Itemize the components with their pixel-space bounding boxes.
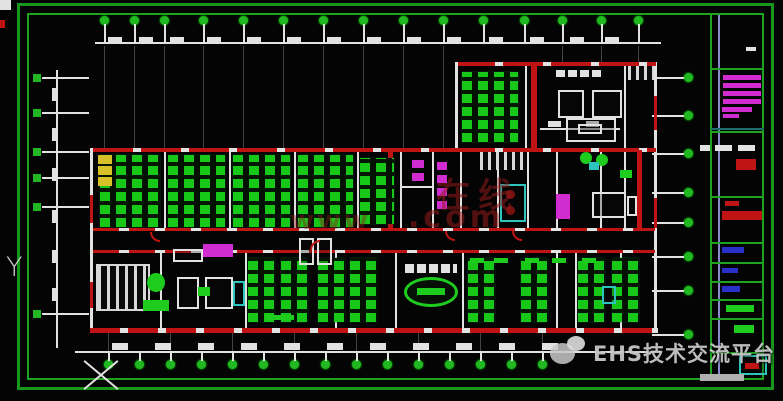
- titleblock-magenta-text-line: [723, 114, 739, 118]
- axis-stem: [480, 353, 482, 361]
- partition-upper: [400, 152, 402, 228]
- axis-stem: [283, 24, 285, 43]
- dimension-text: [52, 210, 58, 223]
- axis-stem: [638, 24, 640, 43]
- axis-bubble-right: [684, 149, 693, 158]
- titleblock-blue-text: [722, 268, 738, 273]
- room-label: [525, 258, 539, 263]
- axis-stem: [139, 353, 141, 361]
- extension-line: [418, 333, 419, 351]
- extension-line: [363, 46, 364, 148]
- wall-right-red: [654, 96, 657, 130]
- partition-lower: [245, 253, 247, 328]
- axis-stem: [483, 24, 485, 43]
- axis-stem: [325, 353, 327, 361]
- axis-leader: [42, 206, 89, 208]
- dimension-text: [155, 343, 171, 350]
- ucs-y-label: Y: [6, 252, 23, 283]
- titleblock-divider: [711, 131, 764, 133]
- extension-line: [601, 46, 602, 62]
- titleblock-magenta-text-line: [723, 83, 761, 88]
- axis-stem: [511, 353, 513, 361]
- workstation-cluster: [281, 258, 308, 322]
- axis-leader: [42, 151, 89, 153]
- center-watermark-fragment: .com: [408, 200, 505, 235]
- extension-line: [134, 46, 135, 148]
- cad-floorplan-image: 在线 .com www EHS技术交流平台 Y: [0, 0, 783, 401]
- axis-stem: [232, 353, 234, 361]
- conference-cabinets: [405, 264, 457, 273]
- dimension-text: [530, 37, 544, 43]
- room-label: [470, 258, 484, 263]
- wall-right-red: [654, 198, 657, 228]
- axis-bubble-right: [684, 286, 693, 295]
- dimension-text: [112, 343, 128, 350]
- dimension-text: [407, 37, 421, 43]
- partition-upper: [527, 152, 529, 228]
- titleblock-red-stamp: [736, 159, 756, 170]
- sofa-table: [578, 124, 602, 134]
- axis-stem: [323, 24, 325, 43]
- extension-line: [283, 46, 284, 148]
- axis-stem: [418, 353, 420, 361]
- axis-marker-left: [33, 203, 41, 211]
- titleblock-divider: [711, 196, 764, 198]
- dimension-text: [52, 250, 58, 263]
- axis-bubble-bottom: [445, 360, 454, 369]
- axis-bubble-bottom: [321, 360, 330, 369]
- titleblock-magenta-text-line: [722, 107, 752, 112]
- extension-line: [203, 46, 204, 148]
- dimension-text: [52, 128, 58, 141]
- titleblock-divider: [711, 281, 764, 283]
- partition-lower: [556, 253, 558, 328]
- partition-lower: [395, 253, 397, 328]
- axis-stem: [108, 353, 110, 361]
- office-desk: [592, 90, 622, 118]
- stair-hatch: [628, 66, 654, 80]
- page-corner-artifact: [0, 0, 11, 10]
- lobby-fixture: [233, 281, 245, 306]
- axis-leader: [42, 112, 89, 114]
- axis-bubble-bottom: [476, 360, 485, 369]
- wall-left-red: [90, 282, 93, 308]
- titleblock-drawing-code: [700, 145, 710, 151]
- extension-line: [170, 333, 171, 351]
- dimension-text: [52, 88, 58, 101]
- dimension-text: [284, 343, 300, 350]
- axis-stem: [203, 24, 205, 43]
- lobby-box: [173, 249, 203, 262]
- axis-bubble-right: [684, 73, 693, 82]
- titleblock-symbol: [734, 325, 754, 333]
- axis-bubble-right: [684, 252, 693, 261]
- dimension-text: [327, 343, 343, 350]
- axis-stem: [524, 24, 526, 43]
- axis-bubble-bottom: [166, 360, 175, 369]
- axis-marker-left: [33, 148, 41, 156]
- hedge: [143, 300, 169, 311]
- dimension-text: [241, 343, 257, 350]
- dimension-text: [499, 343, 515, 350]
- axis-stem: [542, 353, 544, 361]
- dimension-text: [447, 37, 461, 43]
- conference-chairs: [417, 288, 445, 295]
- plant: [198, 287, 210, 296]
- workstation-cluster: [168, 155, 225, 227]
- workstation-cluster: [350, 258, 377, 322]
- workstation-cluster: [578, 258, 605, 322]
- axis-bubble-bottom: [383, 360, 392, 369]
- axis-stem: [201, 353, 203, 361]
- extension-line: [232, 333, 233, 351]
- center-watermark-fragment: www: [290, 206, 371, 236]
- extension-line: [104, 46, 105, 148]
- extension-line: [562, 46, 563, 62]
- axis-stem: [403, 24, 405, 43]
- axis-stem: [263, 353, 265, 361]
- pantry-fixture: [98, 177, 112, 186]
- wall-wing-left: [455, 62, 458, 152]
- dimension-text: [370, 343, 386, 350]
- toilet-fixture: [412, 173, 424, 181]
- extension-line: [356, 333, 357, 351]
- dimension-text: [327, 37, 341, 43]
- titleblock-magenta-text-line: [723, 75, 761, 80]
- meeting-tables: [462, 72, 518, 142]
- dimension-text: [489, 37, 503, 43]
- dimension-text: [207, 37, 221, 43]
- axis-stem: [363, 24, 365, 43]
- titleblock-drawing-code: [715, 145, 732, 151]
- workstation-cluster: [612, 258, 639, 322]
- fixture: [602, 286, 616, 304]
- room-label: [494, 258, 508, 263]
- room-label: [266, 315, 294, 320]
- dimension-text: [413, 343, 429, 350]
- titleblock-teal-divider: [711, 128, 764, 130]
- axis-stem: [243, 24, 245, 43]
- dimension-text: [570, 37, 584, 43]
- extension-line: [164, 46, 165, 148]
- elevator-shaft: [299, 238, 314, 265]
- dimension-line-left: [56, 70, 58, 348]
- side-cabinet: [627, 196, 637, 216]
- axis-stem: [356, 353, 358, 361]
- titleblock-green-text: [726, 305, 754, 312]
- room-label: [552, 258, 566, 263]
- titleblock-magenta-text-line: [723, 91, 761, 96]
- axis-bubble-bottom: [414, 360, 423, 369]
- titleblock-blue-text: [722, 247, 744, 253]
- bottom-right-watermark: EHS技术交流平台: [550, 336, 775, 370]
- dimension-text: [139, 37, 153, 43]
- pantry-fixture: [98, 166, 112, 175]
- axis-stem: [387, 353, 389, 361]
- wing-partition: [624, 66, 626, 150]
- titleblock-logo-mark: [746, 47, 756, 51]
- axis-bubble-bottom: [197, 360, 206, 369]
- toilet-fixture: [556, 194, 570, 219]
- axis-marker-left: [33, 174, 41, 182]
- axis-stem: [601, 24, 603, 43]
- dimension-text: [52, 288, 58, 301]
- axis-stem: [170, 353, 172, 361]
- titleblock-divider: [711, 262, 764, 264]
- axis-bubble-bottom: [538, 360, 547, 369]
- lobby-magenta-door: [203, 244, 233, 257]
- extension-line: [480, 333, 481, 351]
- partition-upper: [229, 152, 231, 228]
- extension-line: [294, 333, 295, 351]
- axis-stem: [104, 24, 106, 43]
- axis-stem: [294, 353, 296, 361]
- titleblock-divider: [711, 318, 764, 320]
- axis-bubble-right: [684, 188, 693, 197]
- titleblock-blue-text: [722, 286, 740, 292]
- reception-desk: [177, 277, 199, 309]
- axis-marker-left: [33, 310, 41, 318]
- dimension-text: [287, 37, 301, 43]
- extension-line: [323, 46, 324, 148]
- stairwell: [96, 264, 150, 311]
- wing-red-column: [531, 66, 537, 150]
- watermark-text: EHS技术交流平台: [593, 338, 775, 368]
- workstation-cluster: [521, 258, 548, 322]
- extension-line: [638, 46, 639, 62]
- axis-stem: [449, 353, 451, 361]
- extension-line: [443, 46, 444, 148]
- axis-bubble-right: [684, 111, 693, 120]
- axis-marker-left: [33, 109, 41, 117]
- titleblock-red-bar: [722, 211, 762, 220]
- partition-lower: [462, 253, 464, 328]
- dimension-text: [170, 37, 184, 43]
- titleblock-red-text: [725, 201, 739, 206]
- edge-red-tick: [0, 20, 5, 28]
- room-label: [582, 258, 596, 263]
- wall-bottom: [90, 328, 658, 333]
- wing-partition: [525, 66, 527, 150]
- cabinet-row: [556, 70, 604, 77]
- axis-stem: [134, 24, 136, 43]
- dimension-text: [456, 343, 472, 350]
- toilet-fixture: [412, 160, 424, 168]
- office-desk: [558, 90, 584, 118]
- titleblock-divider: [711, 242, 764, 244]
- dimension-text: [52, 168, 58, 181]
- wall-corridor-top: [93, 228, 655, 231]
- extension-line: [243, 46, 244, 148]
- partition-lower: [575, 253, 577, 328]
- red-wall-stub: [637, 150, 642, 230]
- titleblock-divider: [711, 299, 764, 301]
- axis-stem: [164, 24, 166, 43]
- axis-stem: [443, 24, 445, 43]
- dimension-text: [108, 37, 122, 43]
- axis-bubble-bottom: [259, 360, 268, 369]
- axis-stem: [562, 24, 564, 43]
- axis-marker-left: [33, 74, 41, 82]
- extension-line: [542, 333, 543, 351]
- workstation-cluster: [318, 258, 345, 322]
- core-partition: [402, 186, 432, 188]
- dimension-text: [367, 37, 381, 43]
- axis-leader: [42, 177, 89, 179]
- axis-leader: [42, 313, 89, 315]
- titleblock-gray-strip: [700, 374, 744, 381]
- extension-line: [108, 333, 109, 351]
- titleblock-magenta-text-line: [723, 99, 761, 104]
- dimension-text: [548, 121, 561, 127]
- plant: [620, 170, 632, 178]
- workstation-cluster: [233, 155, 290, 227]
- extension-line: [403, 46, 404, 148]
- axis-leader: [42, 77, 89, 79]
- wechat-icon: [550, 336, 588, 370]
- partition-upper: [164, 152, 166, 228]
- pantry-fixture: [98, 155, 112, 164]
- axis-bubble-right: [684, 218, 693, 227]
- dimension-text: [605, 37, 619, 43]
- axis-bubble-bottom: [352, 360, 361, 369]
- manager-desk: [592, 192, 626, 218]
- titleblock-drawing-code: [738, 145, 755, 151]
- workstation-cluster: [468, 258, 495, 322]
- axis-bubble-bottom: [135, 360, 144, 369]
- axis-bubble-bottom: [228, 360, 237, 369]
- workstation-cluster: [248, 258, 275, 322]
- wall-left-red: [90, 195, 93, 223]
- axis-bubble-bottom: [290, 360, 299, 369]
- axis-bubble-bottom: [507, 360, 516, 369]
- dimension-text: [247, 37, 261, 43]
- dimension-text: [198, 343, 214, 350]
- titleblock-divider: [711, 68, 764, 70]
- office-chair: [589, 162, 599, 170]
- plant: [147, 273, 165, 292]
